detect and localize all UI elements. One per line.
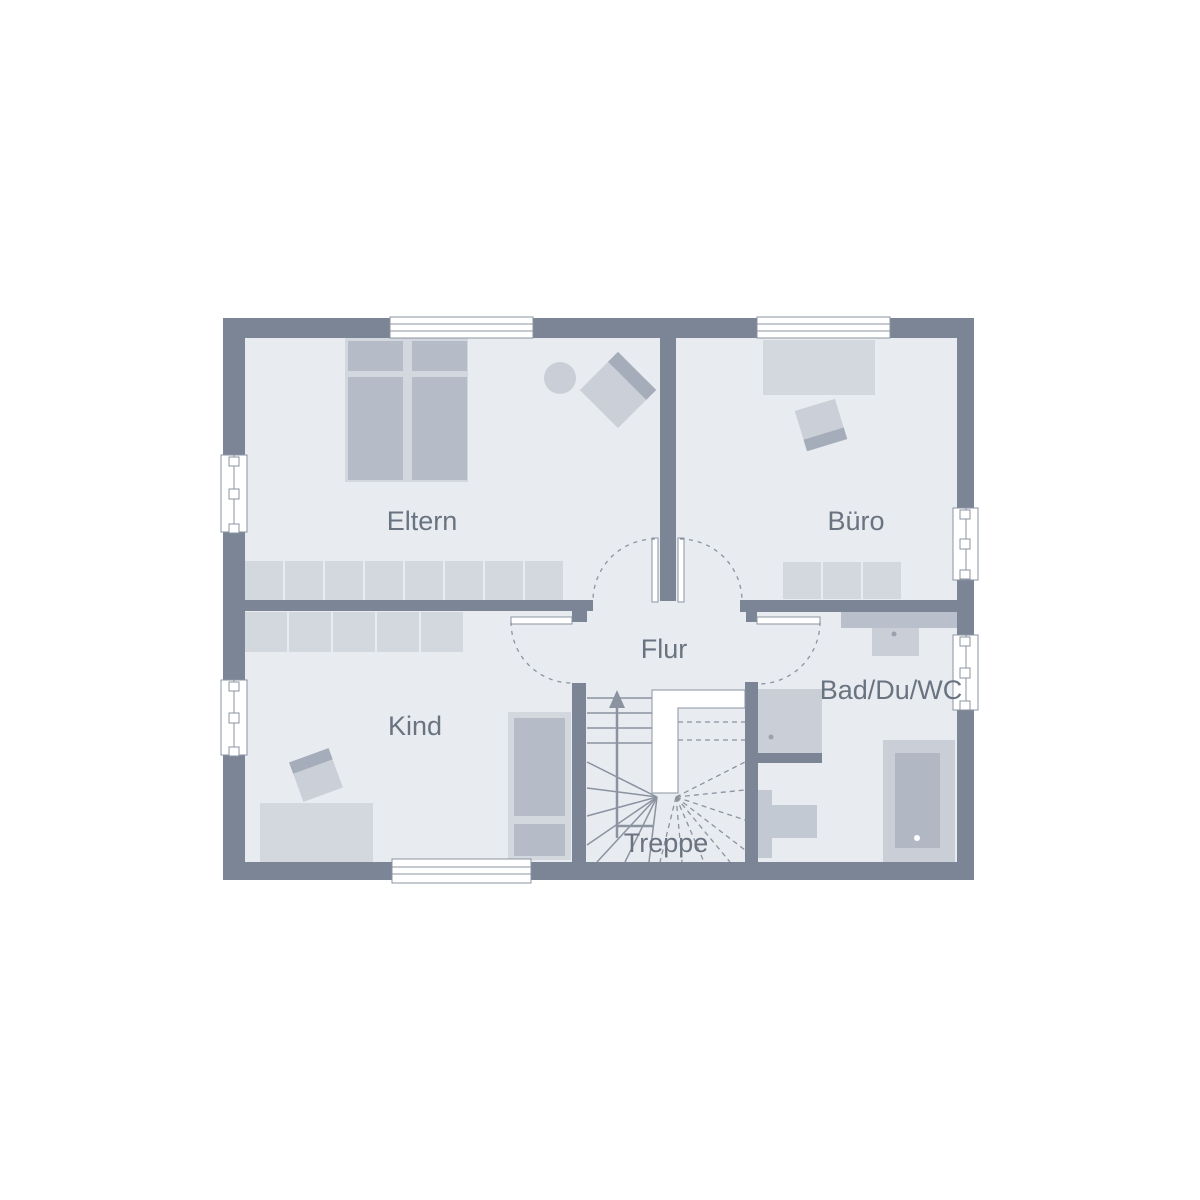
tub-basin — [895, 753, 940, 848]
label-buero: Büro — [827, 506, 884, 536]
bathtub — [883, 740, 955, 862]
vanity-counter — [841, 612, 957, 628]
basin-drain — [892, 632, 897, 637]
wall-shower-stub — [758, 753, 822, 763]
shower-drain — [769, 735, 774, 740]
pillow-right — [412, 341, 467, 371]
label-eltern: Eltern — [387, 506, 458, 536]
pillow-left — [348, 341, 403, 371]
window-top-buero — [757, 317, 890, 338]
mattress-right — [412, 377, 467, 480]
wall-stairs-left — [572, 683, 586, 862]
floor-plan-drawing: Eltern Büro Kind Flur Bad/Du/WC Treppe — [0, 0, 1200, 1200]
stool — [544, 362, 576, 394]
window-bottom-kind — [392, 859, 531, 883]
sideboard-buero — [783, 562, 901, 599]
label-flur: Flur — [641, 634, 688, 664]
mattress — [514, 718, 565, 816]
door-leaf — [678, 538, 684, 602]
wall-eltern-kind — [245, 600, 593, 611]
wall-jamb-kind-door — [572, 600, 587, 622]
window-left-eltern — [221, 455, 247, 533]
window-top-eltern — [390, 317, 533, 338]
bed-kind — [508, 712, 571, 860]
label-kind: Kind — [388, 711, 442, 741]
mattress-left — [348, 377, 403, 480]
wardrobe-kind — [245, 612, 463, 652]
label-bad: Bad/Du/WC — [820, 675, 963, 705]
door-leaf — [652, 538, 658, 602]
wall-jamb-bad-door — [746, 612, 757, 622]
toilet-bowl — [772, 805, 817, 838]
label-treppe: Treppe — [624, 828, 709, 858]
double-bed — [345, 338, 468, 482]
wall-buero-bad — [740, 600, 957, 612]
wall-stairs-right — [745, 682, 758, 862]
window-right-buero — [953, 508, 978, 580]
window-left-kind — [221, 680, 247, 756]
shower — [758, 689, 822, 753]
door-leaf — [511, 617, 572, 624]
floor-plan: Eltern Büro Kind Flur Bad/Du/WC Treppe — [0, 0, 1200, 1200]
tub-drain — [914, 835, 920, 841]
desk-kind — [260, 803, 373, 862]
desk-buero — [763, 340, 875, 395]
door-leaf — [757, 617, 820, 624]
toilet-tank — [758, 790, 772, 858]
pillow — [514, 824, 565, 856]
wall-eltern-buero — [660, 338, 676, 601]
